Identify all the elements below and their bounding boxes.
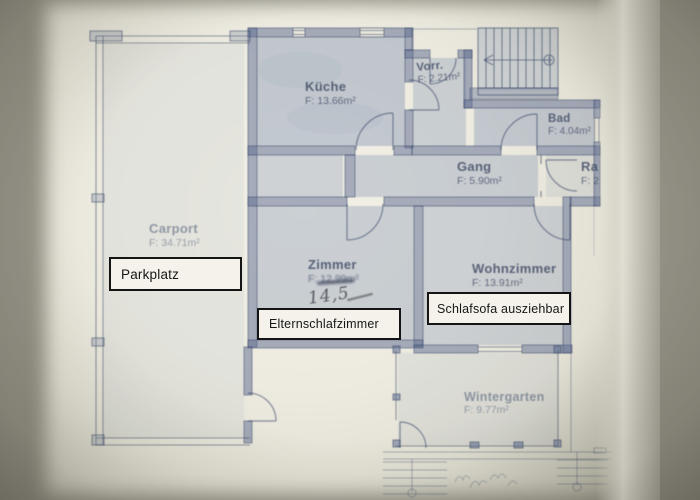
room-label-gang: Gang F: 5.90m²	[457, 160, 502, 187]
floorplan-drawing	[0, 0, 700, 500]
annotation-box-parkplatz: Parkplatz	[109, 257, 242, 291]
room-label-vorr: Vorr. F: 2.21m²	[416, 58, 461, 86]
plan-layer: Küche F: 13.66m² Vorr. F: 2.21m² Bad F: …	[0, 0, 700, 500]
floorplan-photo: Küche F: 13.66m² Vorr. F: 2.21m² Bad F: …	[0, 0, 700, 500]
annotation-text-schlafsofa: Schlafsofa ausziehbar	[429, 302, 564, 316]
room-label-bad: Bad F: 4.04m²	[548, 113, 591, 138]
room-label-carport: Carport F: 34.71m²	[149, 222, 200, 249]
plants-sketch	[455, 474, 517, 488]
room-label-wohnzimmer: Wohnzimmer F: 13.91m²	[472, 262, 556, 289]
room-label-kueche: Küche F: 13.66m²	[305, 80, 356, 107]
room-label-wintergarten: Wintergarten F: 9.77m²	[464, 390, 545, 416]
annotation-text-parkplatz: Parkplatz	[111, 267, 179, 282]
annotation-box-schlafsofa: Schlafsofa ausziehbar	[427, 292, 571, 325]
annotation-text-elternschlafzimmer: Elternschlafzimmer	[259, 317, 379, 331]
photo-edge-fade	[596, 0, 660, 500]
annotation-box-elternschlafzimmer: Elternschlafzimmer	[257, 308, 401, 340]
